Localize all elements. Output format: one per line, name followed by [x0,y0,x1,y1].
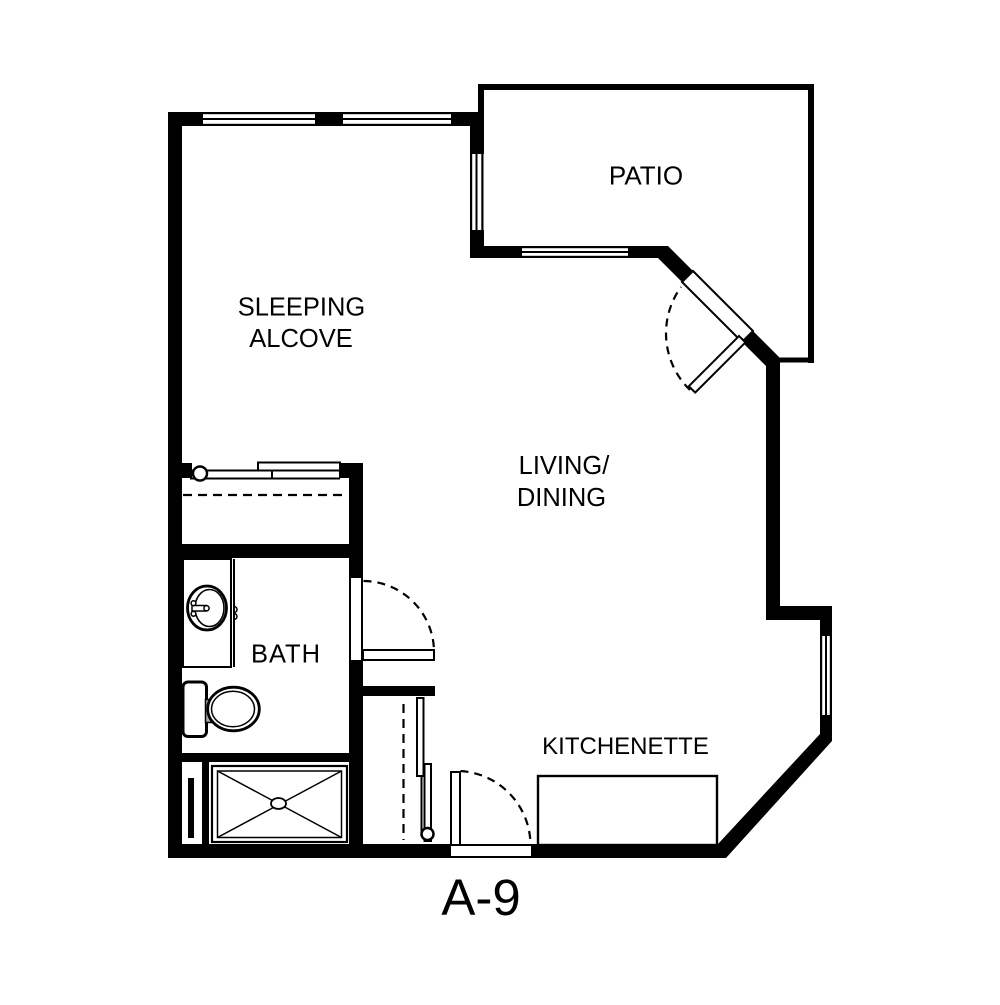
svg-text:BATH: BATH [251,640,321,668]
svg-text:LIVING/: LIVING/ [519,452,611,480]
svg-text:A-9: A-9 [441,869,520,926]
svg-text:PATIO: PATIO [609,161,683,191]
svg-text:SLEEPING: SLEEPING [238,293,366,321]
svg-text:ALCOVE: ALCOVE [249,325,352,353]
svg-text:DINING: DINING [517,484,606,512]
svg-text:KITCHENETTE: KITCHENETTE [542,733,709,760]
